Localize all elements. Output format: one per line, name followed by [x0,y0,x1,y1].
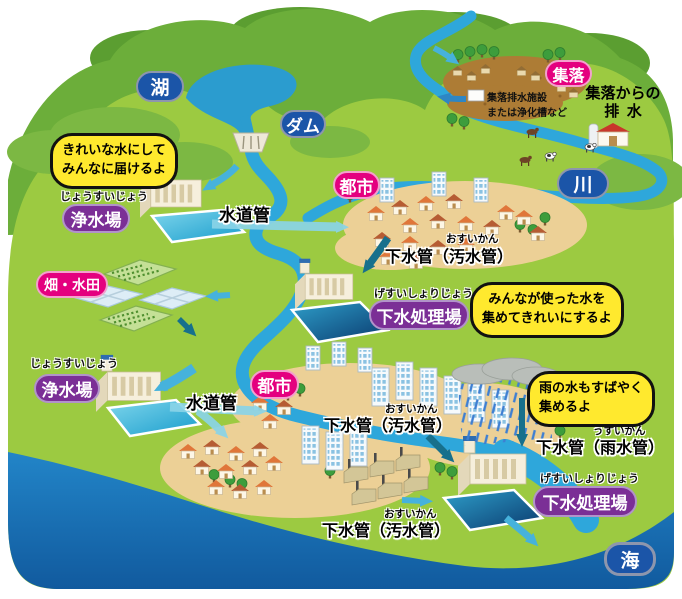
bubble-sewage-line2: 集めてきれいにするよ [482,310,612,329]
label-sewer-city-lower: 下水管（汚水管） [324,412,452,436]
drainage-facility-building [468,90,484,101]
annotation-settlement-facility: 集落排水施設 または浄化槽など [487,91,567,121]
badge-sewage-lower: 下水処理場 [533,486,637,517]
speech-bubble-rain: 雨の水もすばやく 集めるよ [527,371,655,427]
furigana-sewage-mid: げすいしょりじょう [374,285,473,301]
badge-sewage-mid: 下水処理場 [369,300,469,330]
bubble-rain-line1: 雨の水もすばやく [539,380,643,399]
drainage-line2: 排水 [585,102,661,120]
furigana-sewage-lower: げすいしょりじょう [540,470,639,486]
badge-city-upper: 都市 [333,171,380,199]
furigana-purification-lower: じょうすいじょう [30,355,118,371]
badge-sea: 海 [604,542,656,576]
badge-river: 川 [557,168,609,199]
badge-purification-lower: 浄水場 [34,374,100,403]
badge-city-lower: 都市 [250,370,299,399]
label-water-pipe-upper: 水道管 [219,201,270,226]
badge-purification-upper: 浄水場 [62,204,130,233]
label-sewer-factory: 下水管（汚水管） [322,517,450,541]
badge-lake: 湖 [136,71,184,102]
badge-settlement: 集落 [545,60,592,87]
facility-line1: 集落排水施設 [487,91,567,106]
badge-dam: ダム [280,110,326,138]
furigana-purification-upper: じょうすいじょう [60,188,148,204]
label-water-pipe-lower: 水道管 [186,389,237,414]
annotation-settlement-drainage: 集落からの 排水 [585,84,661,120]
bubble-purification-line2: みんなに届けるよ [62,161,166,180]
water-cycle-diagram: 湖 ダム 集落 川 海 都市 都市 畑・水田 じょうすいじょう 浄水場 じょうす… [0,0,682,599]
bubble-purification-line1: きれいな水にして [62,142,166,161]
bubble-sewage-line1: みんなが使った水を [482,291,612,310]
speech-bubble-purification: きれいな水にして みんなに届けるよ [50,133,178,189]
drainage-line1: 集落からの [585,84,661,102]
speech-bubble-sewage: みんなが使った水を 集めてきれいにするよ [470,282,624,338]
badge-fields: 畑・水田 [36,271,108,298]
facility-line2: または浄化槽など [487,106,567,121]
label-sewer-city-upper: 下水管（汚水管） [385,243,513,267]
bubble-rain-line2: 集めるよ [539,399,643,418]
label-storm-pipe: 下水管（雨水管） [536,434,664,458]
